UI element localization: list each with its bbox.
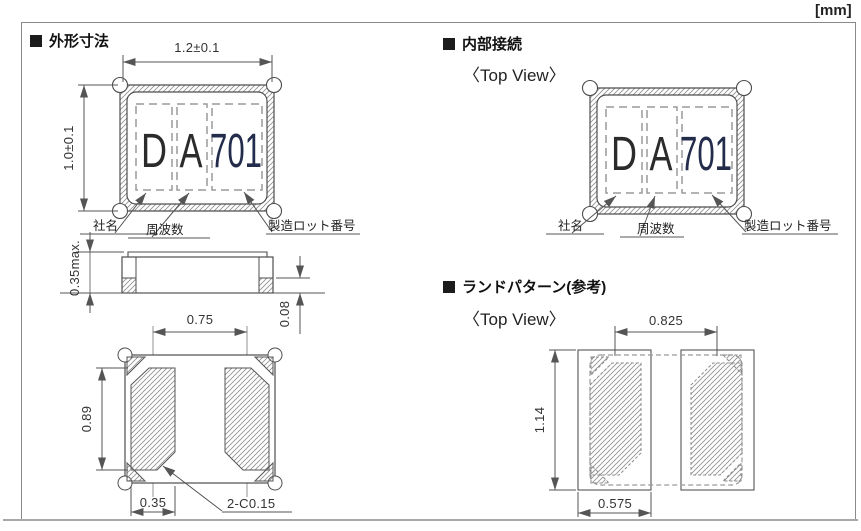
dim-land-width: 0.575 [598,496,632,511]
label-company: 社名 [558,218,583,233]
internal-package [583,81,752,222]
dim-body-width: 1.2±0.1 [174,40,219,55]
dim-pad-pitch: 0.75 [187,312,214,327]
outline-height-dimension [78,85,118,211]
dim-pad-thickness: 0.08 [277,301,292,328]
label-frequency: 周波数 [637,221,675,236]
side-pad-left [122,278,136,293]
bottom-view [118,348,282,490]
pad-length-dimension [96,368,128,470]
side-pad-right [259,278,273,293]
dim-pad-length: 0.89 [79,406,94,433]
label-lot: 製造ロット番号 [744,219,832,233]
dim-land-length: 1.14 [532,407,547,434]
land-length-dimension [549,350,576,490]
dim-pad-width: 0.35 [140,495,167,510]
side-view [60,252,325,293]
thickness-dimension [76,232,124,313]
datasheet-page: [mm] 外形寸法 内部接続 〈Top View〉 ランドパターン(参考) 〈T… [0,0,861,531]
label-company: 社名 [93,218,118,233]
outline-width-dimension [123,55,272,82]
label-lot: 製造ロット番号 [268,219,356,233]
outline-package [113,78,282,219]
dim-chamfer: 2-C0.15 [227,496,275,511]
technical-drawing: D A 701 1.2±0.1 1.0±0.1 社名 周波 [0,0,861,531]
dim-body-thickness: 0.35max. [67,240,82,296]
dim-body-height: 1.0±0.1 [61,125,76,170]
dim-land-pitch: 0.825 [649,313,683,328]
label-frequency: 周波数 [146,222,184,237]
land-pattern [578,350,754,490]
